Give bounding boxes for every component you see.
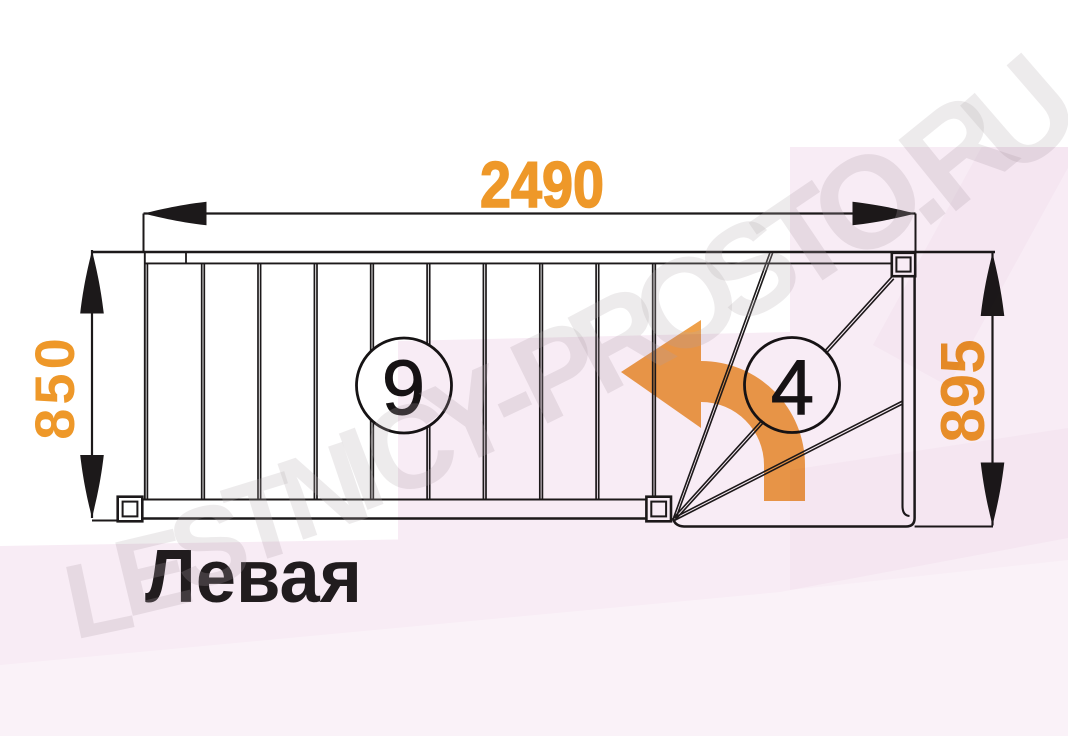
svg-text:2490: 2490 — [480, 148, 604, 221]
svg-text:850: 850 — [23, 334, 86, 439]
